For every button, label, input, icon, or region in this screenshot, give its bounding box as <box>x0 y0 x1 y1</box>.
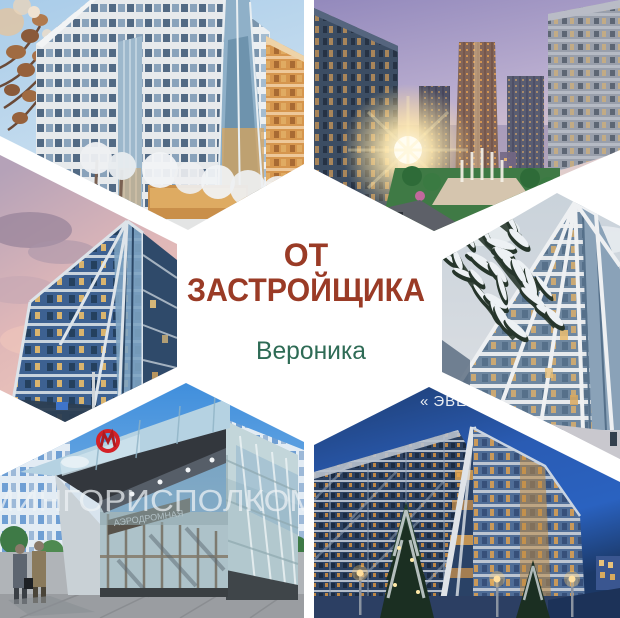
svg-text:ОТ: ОТ <box>284 237 329 273</box>
svg-text:Вероника: Вероника <box>256 337 366 365</box>
svg-text:МИНГОРИСПОЛКОМ: МИНГОРИСПОЛКОМ <box>0 483 317 518</box>
svg-text:ЗАСТРОЙЩИКА: ЗАСТРОЙЩИКА <box>187 272 425 308</box>
